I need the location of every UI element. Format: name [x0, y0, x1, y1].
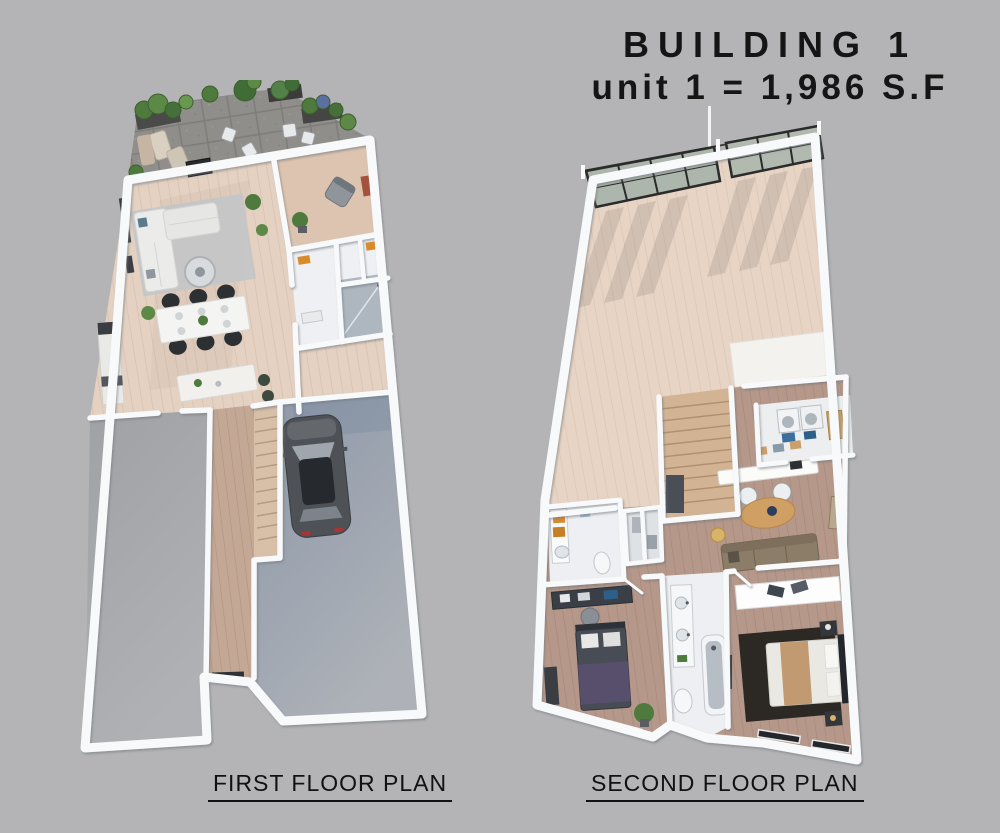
double-vanity — [671, 585, 695, 668]
unit-area-title: unit 1 = 1,986 S.F — [552, 68, 988, 108]
laundry-basket — [782, 432, 796, 442]
sink — [555, 546, 569, 558]
page-title: BUILDING 1 unit 1 = 1,986 S.F — [552, 24, 988, 108]
corner-plant — [245, 194, 261, 210]
tv-dresser — [544, 667, 560, 706]
staircase — [254, 403, 280, 558]
first-floor-plan-image — [40, 80, 460, 780]
building-title: BUILDING 1 — [552, 24, 988, 66]
stair-void — [666, 475, 684, 513]
second-floor-label: SECOND FLOOR PLAN — [586, 770, 864, 802]
master-bed — [766, 634, 852, 708]
floor-lamp — [711, 528, 725, 542]
stairwell — [659, 388, 738, 521]
second-floor-plan-image — [520, 115, 920, 775]
first-floor-label: FIRST FLOOR PLAN — [208, 770, 452, 802]
den-plant — [292, 212, 308, 228]
bed — [575, 621, 631, 710]
floor-plan-sheet: BUILDING 1 unit 1 = 1,986 S.F — [0, 0, 1000, 833]
laptop — [790, 460, 803, 469]
desk-chair — [581, 608, 599, 626]
